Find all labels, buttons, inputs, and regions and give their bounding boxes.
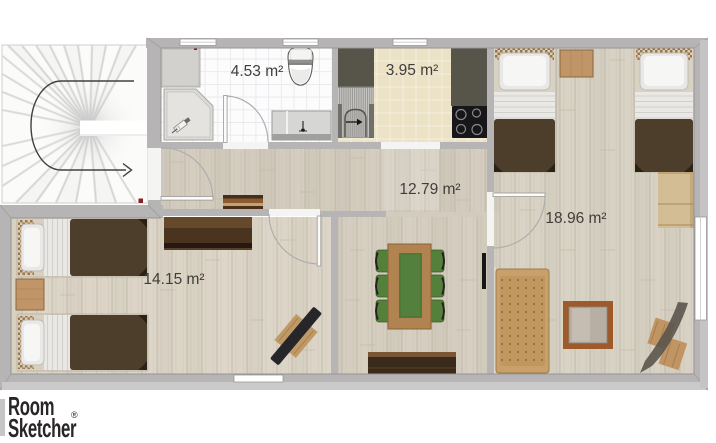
svg-text:18.96 m²: 18.96 m² [545,210,606,227]
svg-text:12.79 m²: 12.79 m² [399,181,460,198]
svg-text:14.15 m²: 14.15 m² [143,271,204,288]
svg-text:Sketcher: Sketcher [8,413,77,443]
svg-text:®: ® [71,410,78,420]
svg-text:4.53 m²: 4.53 m² [231,63,284,80]
svg-text:3.95 m²: 3.95 m² [386,62,439,79]
